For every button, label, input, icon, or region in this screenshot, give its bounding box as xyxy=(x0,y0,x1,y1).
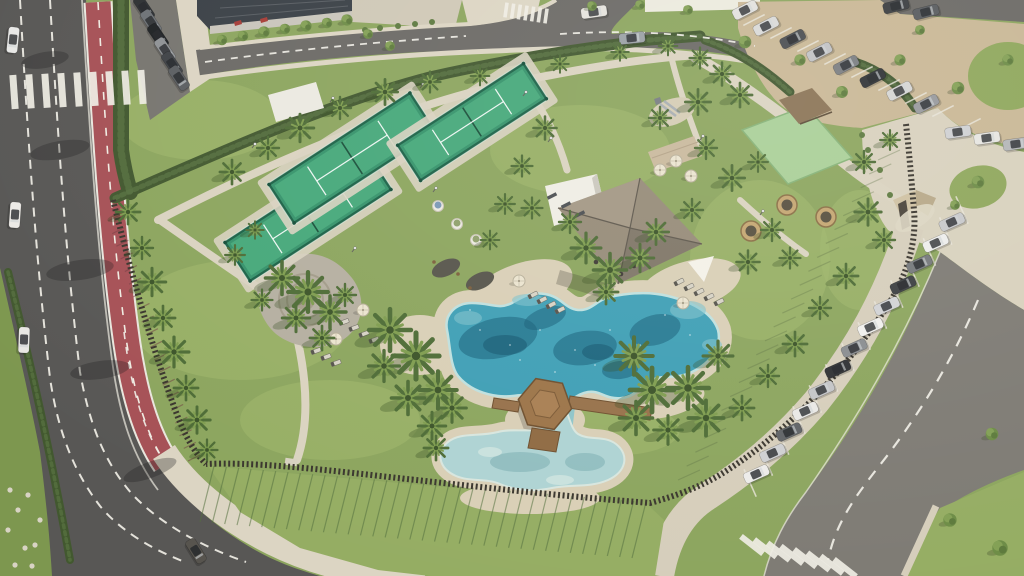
scene-svg xyxy=(0,0,1024,576)
overlay-layer xyxy=(0,0,1024,576)
aerial-photo: Aerial drone view of a resort community … xyxy=(0,0,1024,576)
